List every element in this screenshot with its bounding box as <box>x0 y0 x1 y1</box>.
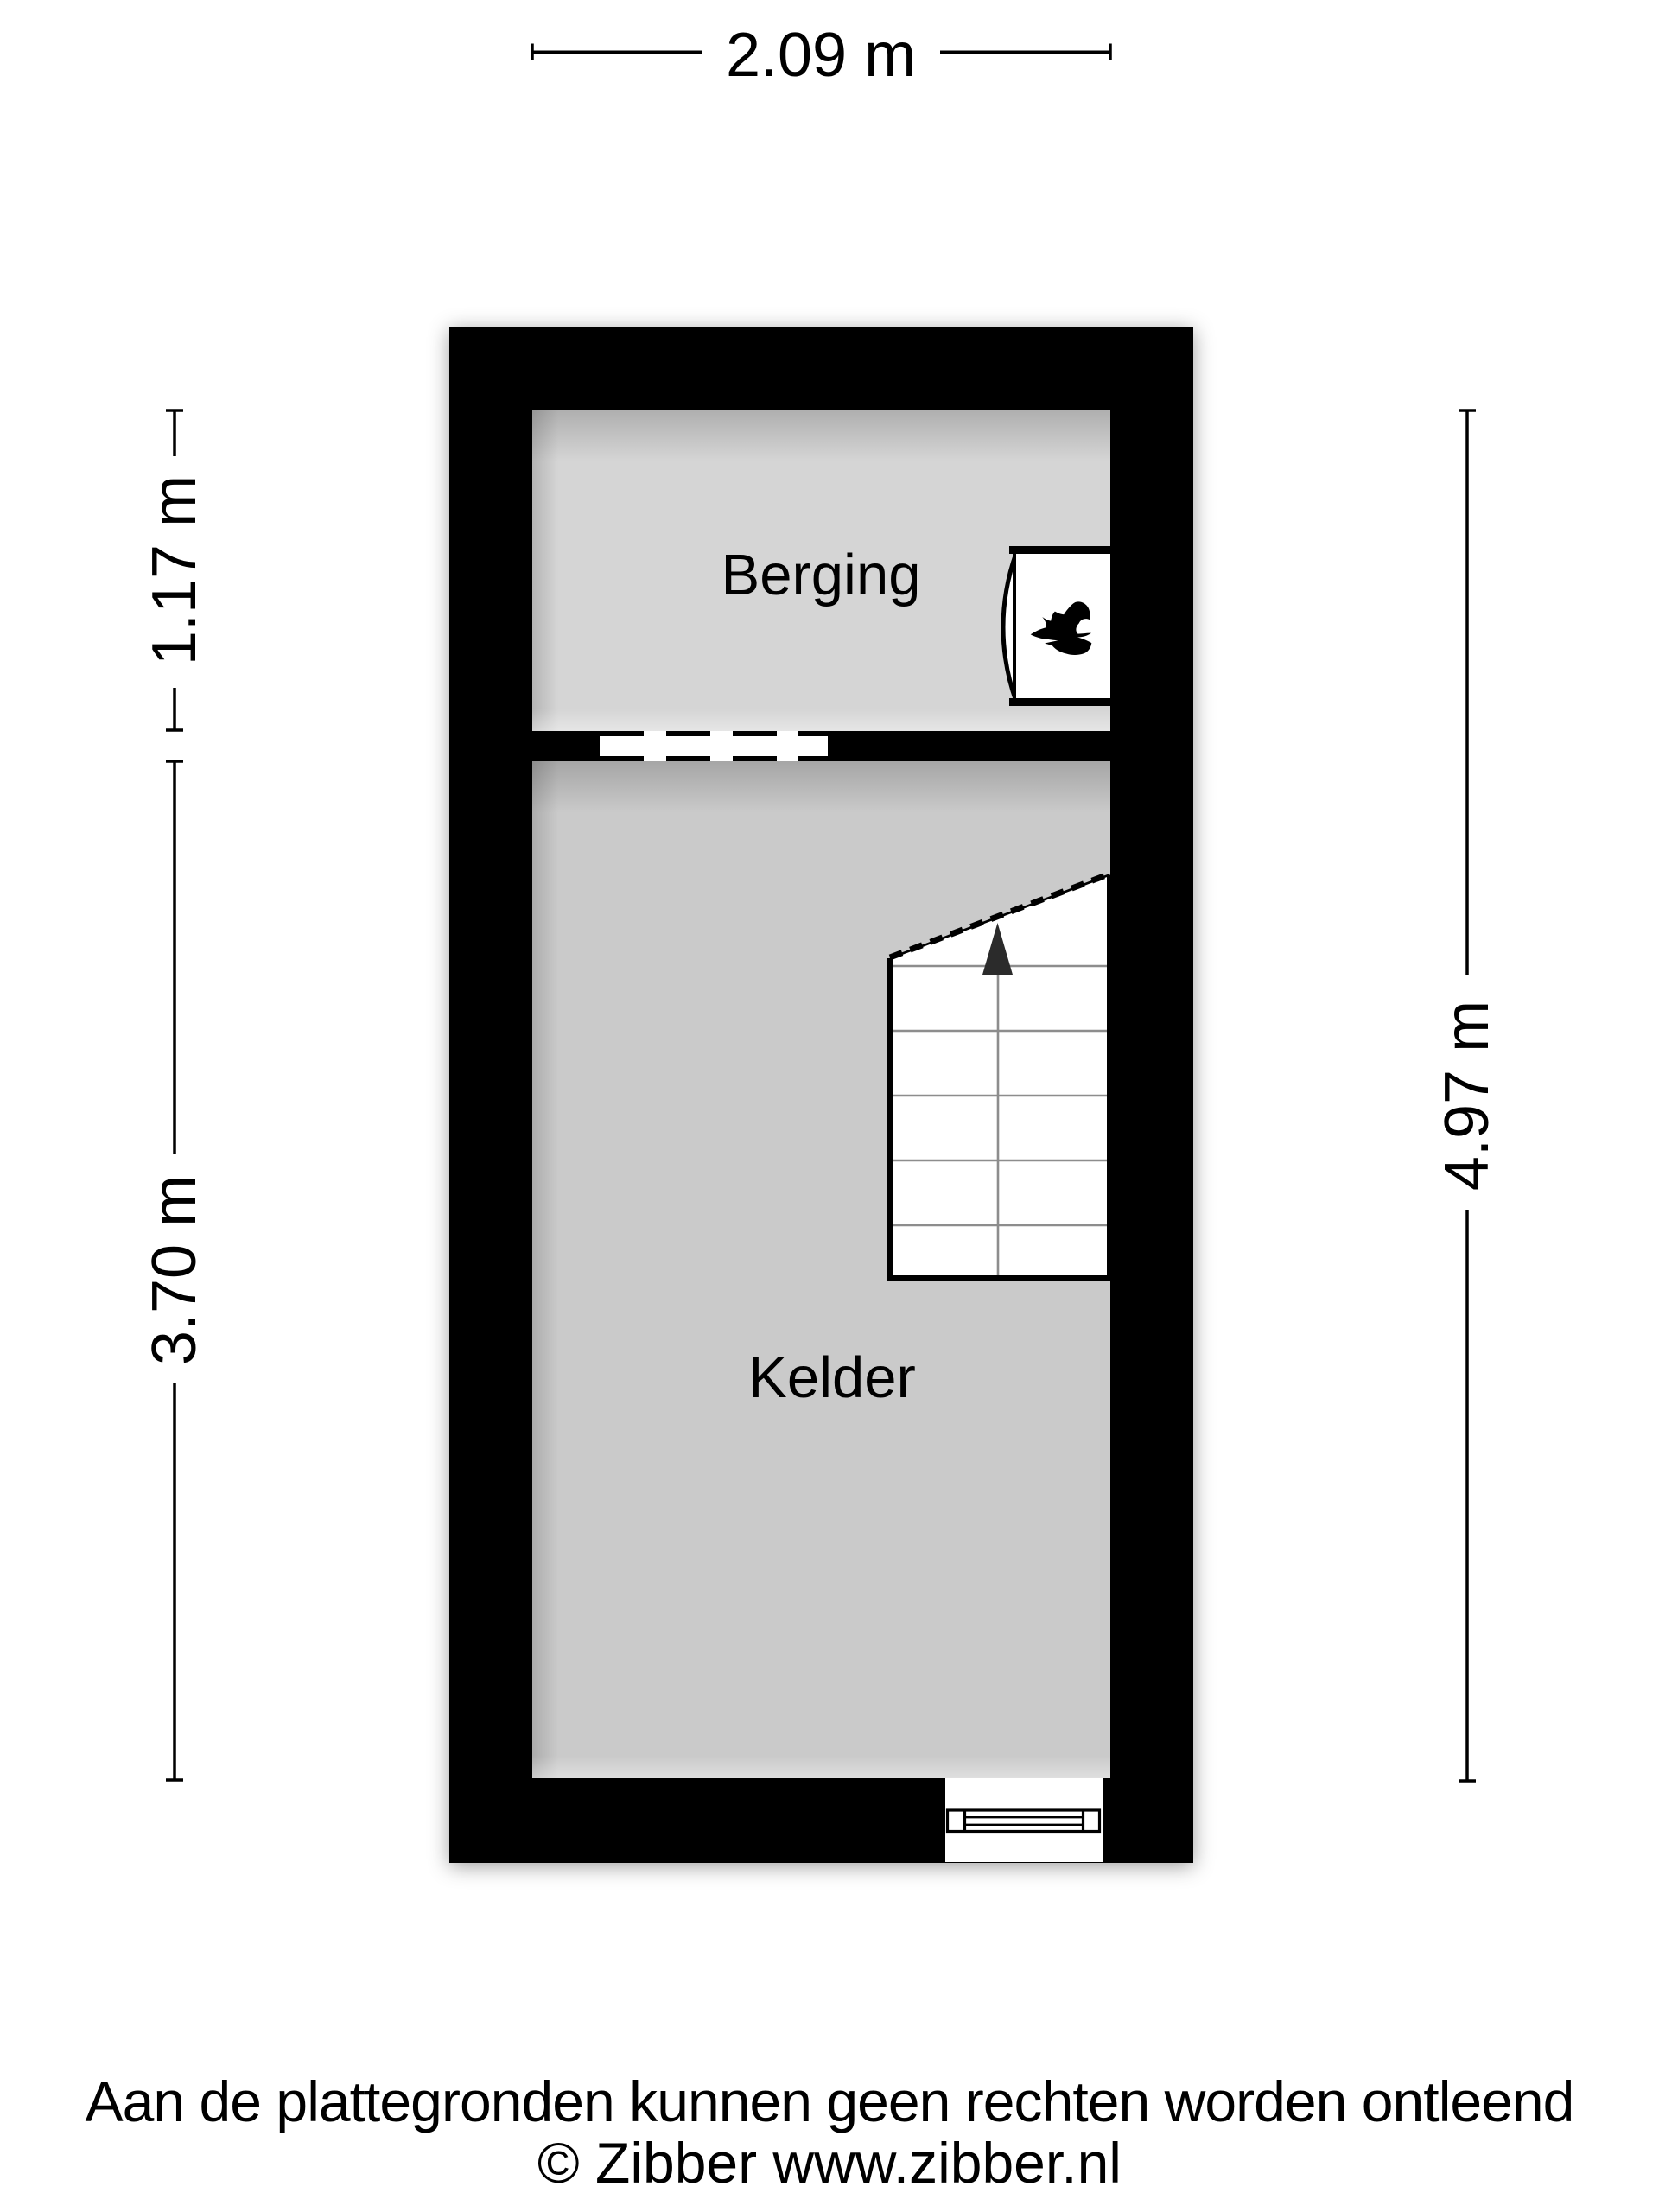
svg-text:Berging: Berging <box>721 543 921 607</box>
svg-text:2.09 m: 2.09 m <box>726 21 916 90</box>
svg-text:1.17 m: 1.17 m <box>140 475 209 665</box>
svg-text:Kelder: Kelder <box>748 1345 916 1410</box>
svg-text:© Zibber www.zibber.nl: © Zibber www.zibber.nl <box>537 2131 1122 2195</box>
svg-text:Aan de plattegronden kunnen ge: Aan de plattegronden kunnen geen rechten… <box>86 2069 1574 2133</box>
svg-text:4.97 m: 4.97 m <box>1433 1001 1502 1191</box>
svg-text:3.70 m: 3.70 m <box>140 1175 209 1365</box>
